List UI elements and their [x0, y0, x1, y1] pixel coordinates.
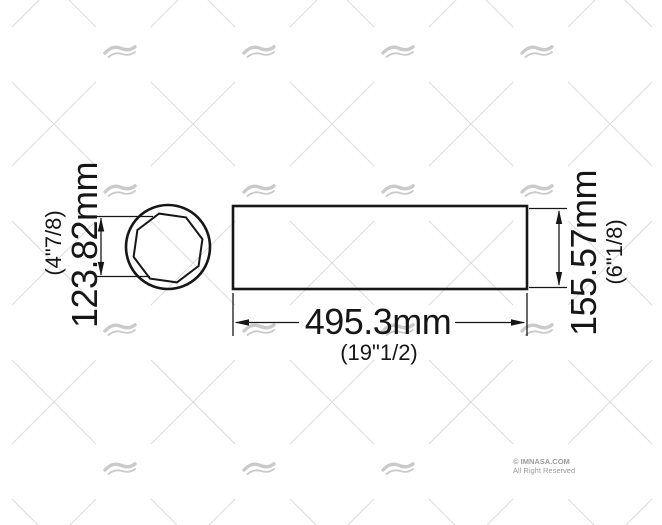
front-view: 123.82mm (4"7/8)	[41, 162, 210, 328]
height-label: 155.57mm	[563, 170, 604, 336]
copyright-owner: © IMNASA.COM	[513, 457, 575, 466]
arrow-up-icon	[556, 210, 562, 224]
copyright-notice: © IMNASA.COM All Right Reserved	[513, 457, 575, 475]
length-label: 495.3mm	[305, 301, 452, 342]
arrow-right-icon	[511, 319, 526, 325]
height-dimension	[529, 209, 567, 288]
tube-side-rectangle	[233, 206, 527, 289]
arrow-left-icon	[235, 319, 250, 325]
diameter-label-secondary: (4"7/8)	[41, 210, 66, 275]
length-label-secondary: (19"1/2)	[340, 340, 418, 365]
side-view: 495.3mm (19"1/2) 155.57mm (6"1/8)	[233, 170, 627, 365]
copyright-rights: All Right Reserved	[513, 466, 575, 475]
arrow-down-icon	[556, 272, 562, 286]
diameter-label: 123.82mm	[64, 162, 105, 328]
tube-inner-octagon	[134, 214, 203, 283]
technical-drawing-canvas: 123.82mm (4"7/8) 495.3mm (19"1/2)	[0, 0, 662, 525]
height-label-secondary: (6"1/8)	[602, 219, 627, 284]
drawing-layer: 123.82mm (4"7/8) 495.3mm (19"1/2)	[0, 0, 662, 525]
